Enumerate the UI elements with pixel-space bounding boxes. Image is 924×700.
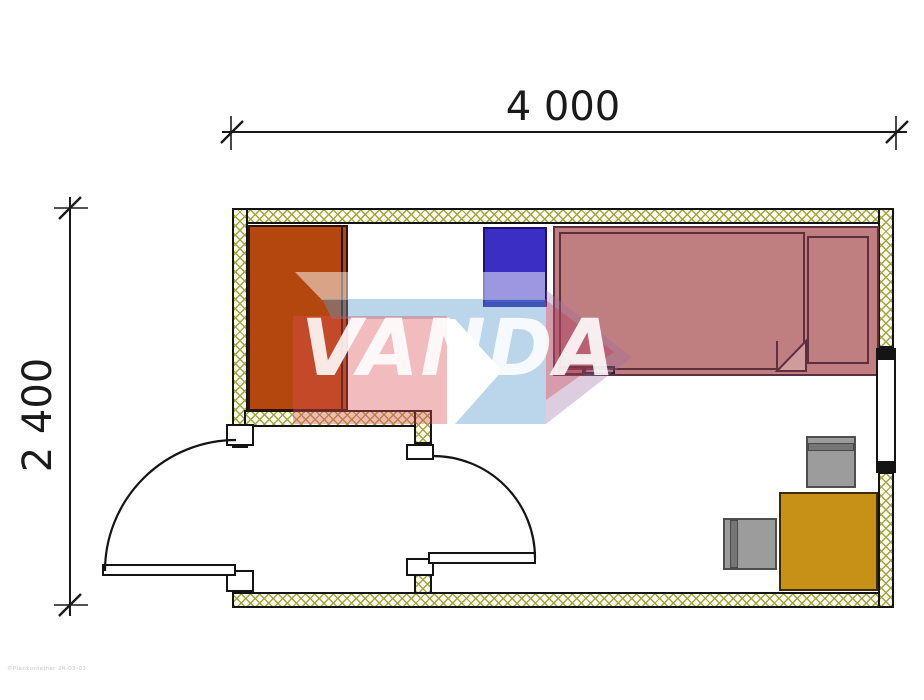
watermark-text: VANDA	[301, 310, 617, 388]
footer-code: ©Plankontejner 2R-03-03	[7, 666, 86, 672]
dimension-height-label: 2 400	[15, 315, 61, 515]
floorplan-page: { "dimensions": { "width_label": "4 000"…	[0, 0, 924, 700]
watermark-facet-white	[295, 272, 545, 300]
dimension-width-label: 4 000	[463, 84, 663, 130]
